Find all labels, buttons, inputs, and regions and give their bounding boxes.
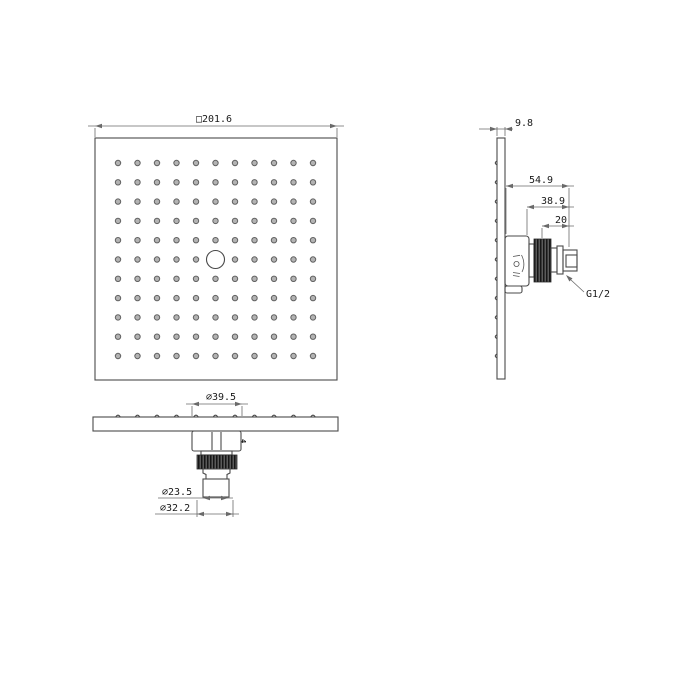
nozzle-dot — [174, 238, 179, 243]
nozzle-dot — [115, 160, 120, 165]
front-width-label: □201.6 — [196, 114, 232, 125]
nozzle-dot — [310, 199, 315, 204]
nozzle-dot — [154, 334, 159, 339]
nozzle-dot — [232, 238, 237, 243]
thread-spec-label: G1/2 — [586, 289, 610, 300]
nozzle-dot — [213, 238, 218, 243]
mounting-block-tab — [505, 286, 522, 293]
nozzle-dot — [252, 160, 257, 165]
nozzle-dot — [115, 199, 120, 204]
nozzle-dot — [174, 199, 179, 204]
nozzle-dot — [154, 276, 159, 281]
nozzle-dot — [271, 199, 276, 204]
nozzle-dot — [310, 160, 315, 165]
nozzle-dot — [193, 334, 198, 339]
nozzle-dot — [115, 353, 120, 358]
neck-taper — [203, 469, 230, 479]
nozzle-dot — [232, 315, 237, 320]
nozzle-dot — [291, 160, 296, 165]
nozzle-dot — [135, 295, 140, 300]
arrowhead — [226, 512, 233, 516]
nozzle-dot — [232, 160, 237, 165]
nozzle-dot — [213, 199, 218, 204]
arrowhead — [506, 184, 513, 188]
nozzle-dot — [252, 315, 257, 320]
nozzle-dot — [252, 180, 257, 185]
nozzle-dot — [154, 353, 159, 358]
arrowhead — [505, 127, 512, 131]
arrowhead — [562, 205, 569, 209]
thickness-label: 9.8 — [515, 118, 533, 129]
nozzle-dot — [271, 276, 276, 281]
nozzle-dot — [115, 315, 120, 320]
collar — [201, 451, 232, 455]
nozzle-dot — [252, 295, 257, 300]
plate-edge-outline — [93, 417, 338, 431]
nozzle-dot — [174, 334, 179, 339]
arrowhead — [330, 124, 337, 128]
nut-diameter-label: ∅32.2 — [160, 503, 190, 514]
side-neck — [551, 248, 557, 272]
nozzle-dot — [232, 180, 237, 185]
threaded-end — [203, 479, 229, 497]
nozzle-dot — [193, 257, 198, 262]
nozzle-dot — [271, 180, 276, 185]
side-flange — [557, 246, 563, 274]
nozzle-dot — [135, 180, 140, 185]
arrowhead — [197, 512, 204, 516]
depth-hub-label: 38.9 — [541, 196, 565, 207]
arrowhead — [192, 402, 199, 406]
nozzle-dot — [193, 238, 198, 243]
nozzle-dot — [174, 218, 179, 223]
arrowhead — [95, 124, 102, 128]
nozzle-dot — [271, 160, 276, 165]
arrowhead — [527, 205, 534, 209]
nozzle-dot — [291, 218, 296, 223]
plate-mark-label: 4 — [239, 439, 247, 443]
nozzle-dot — [174, 295, 179, 300]
technical-drawing-page: □201.6 ∅39.5 4 ∅ — [0, 0, 700, 700]
nozzle-dot — [271, 295, 276, 300]
nozzle-dot — [135, 160, 140, 165]
nozzle-dot — [115, 238, 120, 243]
nozzle-dot — [193, 180, 198, 185]
nozzle-dot — [310, 295, 315, 300]
nozzle-dot — [115, 276, 120, 281]
nozzle-dot — [271, 257, 276, 262]
nozzle-dot — [213, 353, 218, 358]
nozzle-dot — [193, 199, 198, 204]
nozzle-dot — [271, 238, 276, 243]
nozzle-dot — [213, 218, 218, 223]
nozzle-dot — [154, 199, 159, 204]
thread-spec-callout: G1/2 — [566, 275, 610, 300]
nozzle-dot — [271, 218, 276, 223]
engraving-mark — [513, 255, 524, 277]
nozzle-dot — [291, 353, 296, 358]
nozzle-dot — [252, 334, 257, 339]
nozzle-dot — [252, 218, 257, 223]
nozzle-dot — [135, 315, 140, 320]
nozzle-dot — [154, 257, 159, 262]
nozzle-dot — [154, 180, 159, 185]
side-knurled-nut — [534, 239, 551, 282]
thread-length-label: 20 — [555, 215, 567, 226]
side-pipe-bore — [566, 255, 577, 267]
depth-overall-label: 54.9 — [529, 175, 553, 186]
nozzle-dot — [154, 160, 159, 165]
nozzle-dot — [174, 257, 179, 262]
side-view: 9.8 54.9 — [479, 118, 610, 379]
nozzle-dot — [232, 295, 237, 300]
nozzle-dot — [213, 276, 218, 281]
nozzle-dot — [252, 199, 257, 204]
nozzle-dot — [213, 334, 218, 339]
center-hole — [207, 251, 225, 269]
arrowhead — [562, 184, 569, 188]
arrowhead — [235, 402, 242, 406]
arrowhead — [542, 224, 549, 228]
nozzle-dot — [115, 218, 120, 223]
nozzle-dot — [135, 199, 140, 204]
nozzle-dot — [174, 315, 179, 320]
nozzle-dot — [232, 199, 237, 204]
nozzle-dot — [193, 295, 198, 300]
nozzle-dot — [310, 218, 315, 223]
plate-side-outline — [497, 138, 505, 379]
front-view: □201.6 — [88, 114, 344, 380]
nozzle-dot — [193, 353, 198, 358]
nozzle-dot — [135, 238, 140, 243]
nozzle-dot — [115, 334, 120, 339]
nozzle-dot — [193, 276, 198, 281]
nozzle-dot — [291, 257, 296, 262]
nozzle-dot — [310, 334, 315, 339]
nozzle-dot — [310, 353, 315, 358]
nozzle-dot — [291, 315, 296, 320]
nozzle-dot — [291, 276, 296, 281]
shower-head-drawing: □201.6 ∅39.5 4 ∅ — [0, 0, 700, 700]
nozzle-dot — [232, 218, 237, 223]
nozzle-dot — [174, 276, 179, 281]
nozzle-dot — [174, 180, 179, 185]
nozzle-dot — [135, 257, 140, 262]
nozzle-dot — [154, 218, 159, 223]
front-width-dimension: □201.6 — [88, 114, 344, 137]
thickness-dimension: 9.8 — [479, 118, 533, 136]
nozzle-dot — [193, 315, 198, 320]
nozzle-dot — [271, 315, 276, 320]
hub-diameter-label: ∅39.5 — [206, 392, 236, 403]
nozzle-dot — [174, 353, 179, 358]
nozzle-dot — [154, 238, 159, 243]
nozzle-dot — [310, 238, 315, 243]
nozzle-dot — [291, 238, 296, 243]
nozzle-dot — [310, 257, 315, 262]
nozzle-dot — [252, 353, 257, 358]
knurled-nut — [197, 455, 237, 469]
nozzle-dot — [232, 257, 237, 262]
nozzle-dot — [115, 180, 120, 185]
nozzle-dot — [135, 353, 140, 358]
nozzle-dot — [291, 334, 296, 339]
nozzle-dot — [135, 276, 140, 281]
nozzle-dot — [135, 334, 140, 339]
nozzle-dot — [213, 315, 218, 320]
nozzle-dot — [174, 160, 179, 165]
nozzle-dot — [310, 276, 315, 281]
mounting-block — [505, 236, 529, 286]
side-collar — [529, 244, 534, 277]
arrowhead — [490, 127, 497, 131]
nozzle-dot — [193, 160, 198, 165]
side-threaded-pipe — [563, 250, 577, 271]
nozzle-dot — [310, 315, 315, 320]
nozzle-dot — [232, 353, 237, 358]
nozzle-dot — [252, 257, 257, 262]
nozzle-dot — [213, 180, 218, 185]
nozzle-dot — [232, 276, 237, 281]
nozzle-dot — [291, 180, 296, 185]
nozzle-dot — [213, 160, 218, 165]
nozzle-dot — [213, 295, 218, 300]
nozzle-dot — [115, 295, 120, 300]
nozzle-dot — [232, 334, 237, 339]
thread-diameter-label: ∅23.5 — [162, 487, 192, 498]
nozzle-dot — [310, 180, 315, 185]
nozzle-dot — [291, 295, 296, 300]
bottom-view: ∅39.5 4 ∅23.5 ∅32.2 — [93, 392, 338, 517]
nozzle-dot — [271, 353, 276, 358]
nozzle-dot — [271, 334, 276, 339]
nozzle-dot — [115, 257, 120, 262]
nozzle-dot — [154, 315, 159, 320]
mounting-hub — [192, 431, 241, 451]
nozzle-dot — [154, 295, 159, 300]
nozzle-dot — [193, 218, 198, 223]
nozzle-dot — [252, 276, 257, 281]
nozzle-dot — [252, 238, 257, 243]
nozzle-dot — [291, 199, 296, 204]
nozzle-dot — [135, 218, 140, 223]
